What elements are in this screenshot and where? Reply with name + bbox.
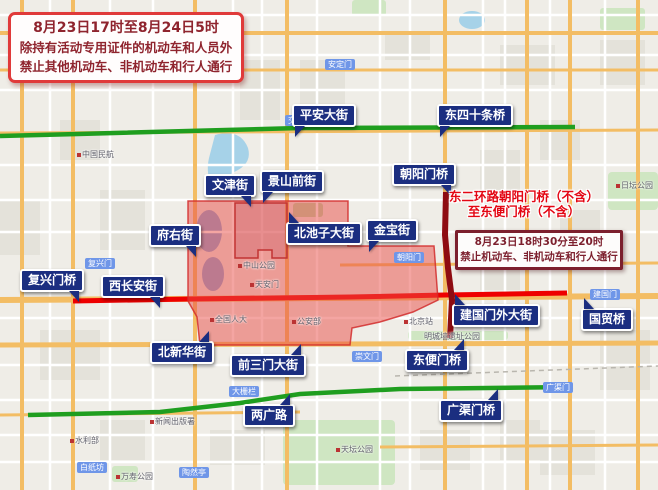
street-label: 北新华街 (150, 341, 214, 364)
callout-pointer-icon (454, 339, 464, 350)
road-badge: 崇文门 (352, 351, 382, 362)
poi-label-text: 明城墙遗址公园 (424, 332, 480, 341)
poi-marker-icon (210, 318, 214, 322)
street-label-text: 景山前街 (268, 174, 316, 188)
road-badge: 安定门 (325, 59, 355, 70)
callout-pointer-icon (150, 297, 160, 308)
main-notice-line2: 除持有活动专用证件的机动车和人员外 (13, 38, 239, 57)
road-badge: 白纸坊 (77, 462, 107, 473)
street-label: 景山前街 (260, 170, 324, 193)
road-badge: 建国门 (590, 289, 620, 300)
poi-label: 万寿公园 (116, 472, 153, 481)
poi-label-text: 水利部 (75, 436, 99, 445)
street-label: 金宝街 (366, 219, 418, 242)
street-label-text: 东便门桥 (413, 353, 461, 367)
street-label-text: 平安大街 (300, 108, 348, 122)
street-label: 文津街 (204, 174, 256, 197)
poi-label: 全国人大 (210, 315, 247, 324)
street-label-text: 国贸桥 (589, 312, 625, 326)
poi-marker-icon (150, 420, 154, 424)
callout-pointer-icon (186, 246, 196, 257)
poi-label-text: 全国人大 (215, 315, 247, 324)
callout-pointer-icon (69, 291, 79, 302)
street-label: 建国门外大街 (452, 304, 540, 327)
poi-marker-icon (616, 184, 620, 188)
poi-label-text: 中山公园 (243, 261, 275, 270)
street-label-text: 府右街 (157, 228, 193, 242)
poi-marker-icon (70, 439, 74, 443)
callout-pointer-icon (291, 344, 301, 355)
street-label-text: 复兴门桥 (28, 273, 76, 287)
road-badge: 复兴门 (85, 258, 115, 269)
poi-label: 新闻出版署 (150, 417, 195, 426)
street-label: 朝阳门桥 (392, 163, 456, 186)
street-label: 西长安街 (101, 275, 165, 298)
poi-label: 中山公园 (238, 261, 275, 270)
street-label: 东四十条桥 (437, 104, 513, 127)
east-ring-notice-line2: 禁止机动车、非机动车和行人通行 (458, 250, 620, 265)
poi-marker-icon (336, 448, 340, 452)
callout-pointer-icon (584, 298, 594, 309)
callout-pointer-icon (289, 212, 299, 223)
east-ring-caption-line1: 东二环路朝阳门桥（不含） (448, 189, 600, 204)
street-label-text: 建国门外大街 (460, 308, 532, 322)
main-notice-line3: 禁止其他机动车、非机动车和行人通行 (13, 57, 239, 76)
street-label-text: 朝阳门桥 (400, 167, 448, 181)
street-label: 东便门桥 (405, 349, 469, 372)
road-badge: 陶然亭 (179, 467, 209, 478)
poi-label: 天安门 (250, 280, 279, 289)
poi-label: 明城墙遗址公园 (424, 332, 480, 341)
poi-label-text: 中国民航 (82, 150, 114, 159)
callout-pointer-icon (440, 126, 450, 137)
poi-label: 中国民航 (77, 150, 114, 159)
street-label-text: 两广路 (251, 408, 287, 422)
callout-pointer-icon (455, 294, 465, 305)
poi-marker-icon (238, 264, 242, 268)
poi-label: 日坛公园 (616, 181, 653, 190)
poi-marker-icon (116, 475, 120, 479)
callout-pointer-icon (488, 389, 498, 400)
road-badge: 朝阳门 (394, 252, 424, 263)
street-label-text: 西长安街 (109, 279, 157, 293)
street-label: 平安大街 (292, 104, 356, 127)
street-label-text: 广渠门桥 (447, 403, 495, 417)
poi-label: 公安部 (292, 317, 321, 326)
callout-pointer-icon (295, 126, 305, 137)
east-ring-caption: 东二环路朝阳门桥（不含） 至东便门桥（不含） (448, 189, 600, 219)
street-label: 北池子大街 (286, 222, 362, 245)
callout-pointer-icon (263, 192, 273, 203)
street-label: 前三门大街 (230, 354, 306, 377)
forbidden-city-outline (235, 203, 287, 258)
main-notice-line1: 8月23日17时至8月24日5时 (13, 19, 239, 38)
poi-marker-icon (404, 320, 408, 324)
poi-label-text: 万寿公园 (121, 472, 153, 481)
street-label: 复兴门桥 (20, 269, 84, 292)
street-label-text: 前三门大街 (238, 358, 298, 372)
traffic-restriction-map: 北京大学人民医院中国民航中山公园天安门全国人大公安部北京站天坛公园万寿公园水利部… (0, 0, 658, 490)
street-label-text: 东四十条桥 (445, 108, 505, 122)
street-label-text: 文津街 (212, 178, 248, 192)
poi-label-text: 日坛公园 (621, 181, 653, 190)
east-ring-notice-box: 8月23日18时30分至20时 禁止机动车、非机动车和行人通行 (455, 230, 623, 270)
poi-marker-icon (77, 153, 81, 157)
road-badge: 广渠门 (543, 382, 573, 393)
road-badge: 大栅栏 (229, 386, 259, 397)
poi-label: 天坛公园 (336, 445, 373, 454)
street-label: 国贸桥 (581, 308, 633, 331)
poi-label: 北京站 (404, 317, 433, 326)
street-label: 府右街 (149, 224, 201, 247)
street-label-text: 北新华街 (158, 345, 206, 359)
poi-label-text: 天安门 (255, 280, 279, 289)
poi-marker-icon (250, 283, 254, 287)
callout-pointer-icon (280, 394, 290, 405)
callout-pointer-icon (369, 241, 379, 252)
callout-pointer-icon (199, 331, 209, 342)
street-label-text: 金宝街 (374, 223, 410, 237)
street-label: 两广路 (243, 404, 295, 427)
poi-label-text: 天坛公园 (341, 445, 373, 454)
street-label: 广渠门桥 (439, 399, 503, 422)
east-ring-caption-line2: 至东便门桥（不含） (448, 204, 600, 219)
poi-label-text: 新闻出版署 (155, 417, 195, 426)
east-ring-notice-line1: 8月23日18时30分至20时 (458, 235, 620, 250)
street-label-text: 北池子大街 (294, 226, 354, 240)
poi-marker-icon (292, 320, 296, 324)
poi-label: 水利部 (70, 436, 99, 445)
poi-label-text: 公安部 (297, 317, 321, 326)
poi-label-text: 北京站 (409, 317, 433, 326)
callout-pointer-icon (241, 196, 251, 207)
main-notice-box: 8月23日17时至8月24日5时 除持有活动专用证件的机动车和人员外 禁止其他机… (8, 12, 244, 83)
